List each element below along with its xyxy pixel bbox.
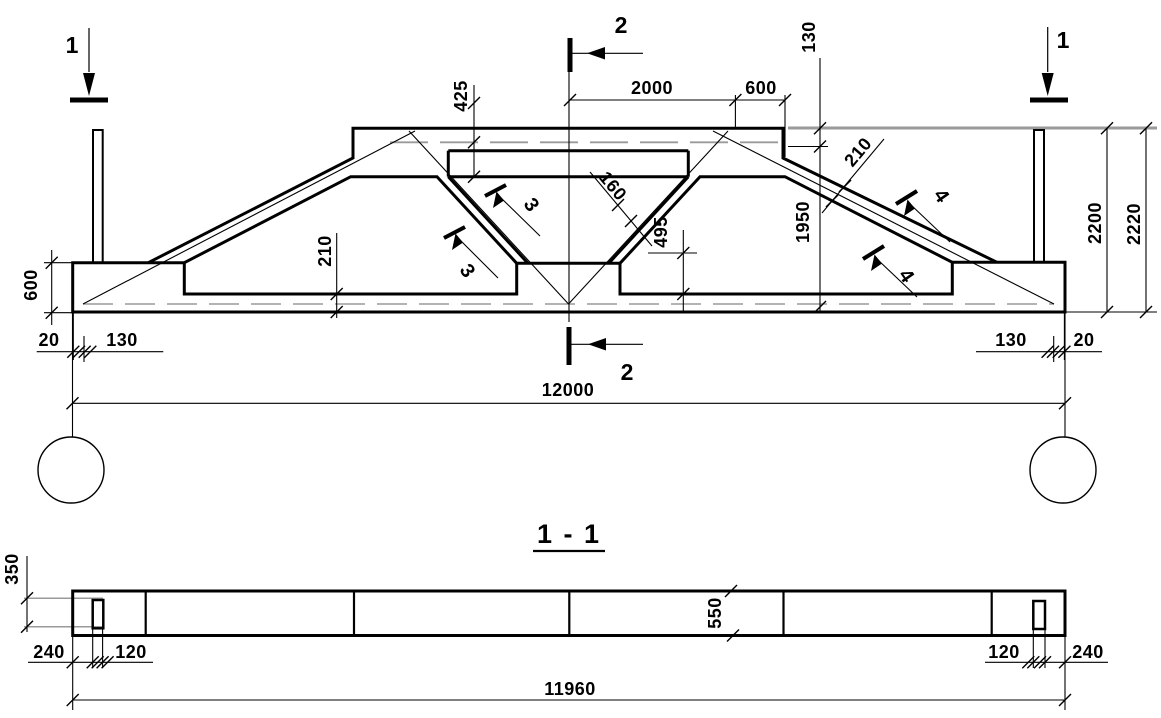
- section-marker-2-bottom: 2: [569, 327, 643, 385]
- dim-160: 160: [595, 167, 631, 204]
- dim-210-chord: 210: [315, 235, 335, 267]
- dim-130-left: 130: [106, 330, 138, 350]
- lifting-hole-left: [93, 600, 104, 628]
- arrow-down-icon: [1042, 73, 1054, 96]
- dim-130-top: 130: [799, 21, 819, 53]
- main-dimension-labels: 425 2000 600 130 210 160 1950 495 210 22…: [21, 21, 1144, 400]
- arrow-down-icon: [83, 73, 95, 96]
- marker-2-top-label: 2: [615, 12, 628, 38]
- dim-240-left: 240: [33, 642, 65, 662]
- detail-marker-4-lower: 4: [863, 246, 919, 297]
- detail-4-upper-label: 4: [929, 185, 954, 207]
- dim-425: 425: [451, 80, 471, 112]
- section-title: 1 - 1: [537, 519, 601, 549]
- dim-350: 350: [2, 553, 22, 585]
- beam-plan: [73, 591, 1065, 636]
- dim-120-left: 120: [115, 642, 147, 662]
- dimension-ticks: [46, 94, 1152, 409]
- dim-2000: 2000: [631, 78, 673, 98]
- grid-bubble-right: [1030, 437, 1096, 503]
- detail-marker-3-upper: 3: [485, 185, 543, 236]
- dim-11960: 11960: [544, 679, 596, 699]
- arrow-left-icon: [588, 338, 606, 351]
- hidden-edges: [24, 598, 103, 626]
- section-marker-1-right: 1: [1030, 27, 1070, 100]
- arrow-left-icon: [587, 47, 605, 60]
- truss-drawing-svg: 1 1 2 2 3: [0, 0, 1161, 718]
- lifting-hole-right: [1033, 601, 1045, 629]
- dim-120-right: 120: [988, 642, 1020, 662]
- right-post: [1034, 130, 1044, 262]
- dim-12000: 12000: [542, 380, 595, 400]
- dim-1950: 1950: [793, 201, 813, 243]
- dim-240-right: 240: [1072, 642, 1104, 662]
- left-post: [93, 130, 103, 263]
- dim-210-diagonal: 210: [840, 133, 876, 170]
- section-marker-1-left: 1: [66, 28, 108, 100]
- technical-drawing-page: 1 1 2 2 3: [0, 0, 1161, 718]
- detail-marker-4-upper: 4: [896, 185, 954, 242]
- marker-2-bottom-label: 2: [621, 359, 634, 385]
- dimension-lines: [37, 58, 1157, 437]
- main-elevation-view: 1 1 2 2 3: [21, 12, 1157, 503]
- dim-20-right: 20: [1073, 330, 1094, 350]
- section-dimension-labels: 350 550 240 120 120 240 11960: [2, 553, 1104, 699]
- detail-3-lower-label: 3: [455, 260, 479, 282]
- dim-550: 550: [705, 597, 725, 629]
- dim-2200: 2200: [1085, 202, 1105, 244]
- segment-joints: [146, 591, 992, 636]
- grid-bubble-left: [38, 437, 104, 503]
- dim-2220: 2220: [1124, 203, 1144, 245]
- section-view-1-1: 1 - 1: [2, 519, 1108, 710]
- dim-495: 495: [651, 216, 671, 248]
- marker-1-left-label: 1: [66, 32, 79, 58]
- detail-3-upper-label: 3: [519, 194, 543, 216]
- section-marker-2-top: 2: [570, 12, 643, 72]
- grid-bubbles: [38, 437, 1096, 503]
- dim-600-left: 600: [21, 269, 41, 301]
- detail-4-lower-label: 4: [894, 265, 919, 287]
- dim-600-top: 600: [745, 78, 777, 98]
- dim-130-right: 130: [995, 330, 1027, 350]
- dim-20-left: 20: [38, 330, 59, 350]
- marker-1-right-label: 1: [1057, 27, 1070, 53]
